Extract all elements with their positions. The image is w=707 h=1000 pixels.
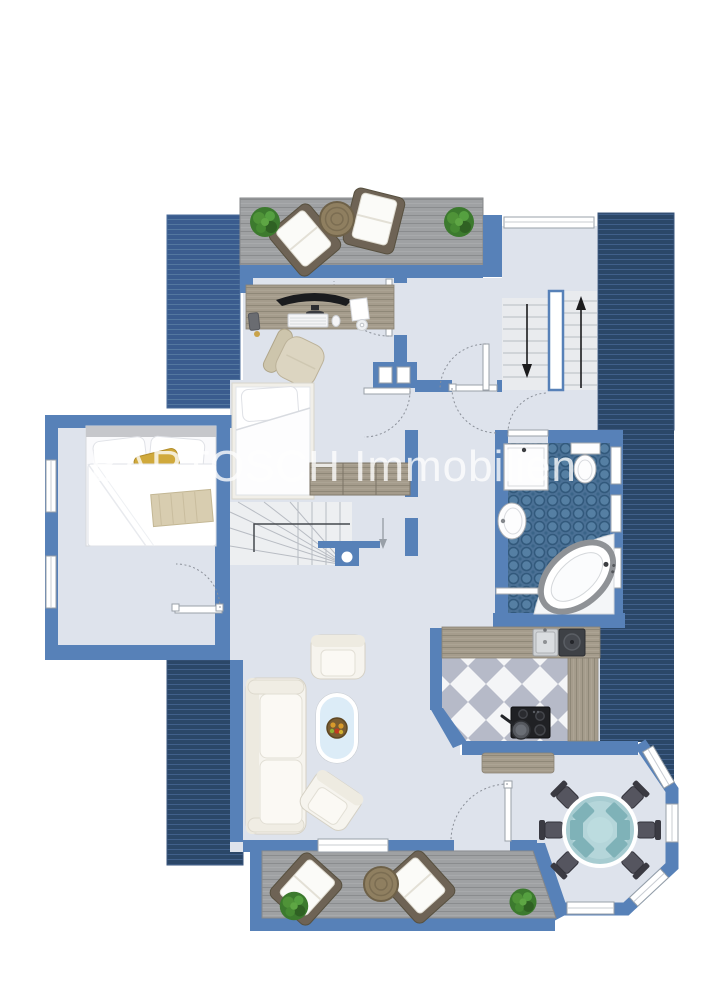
door-bedroom-middle (364, 388, 410, 394)
papers (350, 298, 369, 321)
wall-office-north (240, 265, 483, 278)
door-landing (483, 344, 489, 390)
wall-kitchen-west (430, 628, 442, 710)
kitchen-counter-right (568, 658, 598, 741)
floorplan-drawing (0, 0, 707, 1000)
fruit-bowl (327, 718, 347, 738)
wall-office-east-stub (394, 278, 407, 283)
wall-living-south-b (388, 840, 454, 852)
roof-slope-top-left (167, 215, 240, 408)
parapet-terrace-west (250, 846, 262, 930)
armchair (311, 635, 365, 679)
window-bath-2 (611, 495, 621, 532)
floorplan-page: Dachgeschoss (0, 0, 707, 1000)
plant (444, 207, 474, 237)
desk-accessory (254, 331, 260, 337)
wall-shaft (373, 362, 417, 388)
wicker-table (364, 867, 398, 901)
round-glass-table (564, 794, 636, 866)
coffee-table (316, 693, 358, 763)
towel-rail (496, 588, 538, 594)
watermark: BARTOSCH Immobilien (90, 442, 577, 492)
kitchen-dark-basin (559, 629, 585, 656)
sofa (246, 678, 306, 834)
plant (250, 207, 280, 237)
washbasin (498, 503, 526, 539)
dining-set (539, 780, 661, 881)
wall-bedroom-south (45, 645, 215, 660)
door-hall (452, 385, 497, 391)
dining-chair (637, 820, 661, 840)
sideboard (482, 753, 554, 773)
wall-mid-east-b (405, 518, 418, 556)
wall-bath-south (493, 613, 625, 628)
door-terrace (505, 784, 511, 841)
wall-living-west (230, 660, 243, 842)
dining-chair (539, 820, 563, 840)
door-bedroom-left (175, 606, 222, 613)
plant (280, 892, 309, 921)
door-bathroom (508, 430, 548, 436)
desk-phone (248, 313, 260, 331)
wall-hall-south-a (415, 380, 452, 392)
window-bath-1 (611, 447, 621, 484)
kitchen-sink (533, 628, 558, 656)
wicker-table (320, 202, 354, 236)
wall-bedroom-step (215, 612, 230, 660)
mouse (332, 316, 340, 327)
stair-stringer (549, 291, 563, 390)
wall-hall-south-b (497, 380, 502, 392)
wall-stairwell-west (483, 215, 502, 277)
knit-blanket (151, 489, 214, 526)
wall-bedroom-west (45, 415, 58, 660)
main-staircase (502, 291, 597, 390)
cd (357, 320, 368, 331)
plant (510, 889, 537, 916)
